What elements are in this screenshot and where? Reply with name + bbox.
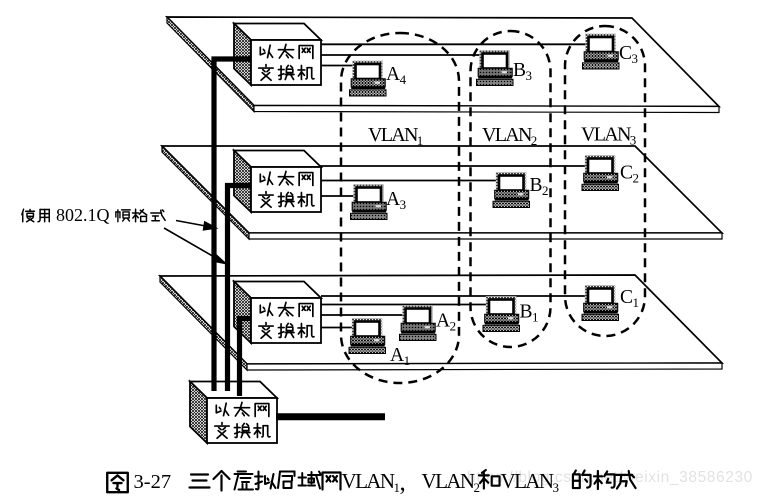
svg-text:VLAN1: VLAN1 <box>342 469 400 495</box>
svg-text:VLAN2: VLAN2 <box>422 469 480 495</box>
svg-text:VLAN2: VLAN2 <box>482 124 537 148</box>
svg-text:VLAN1: VLAN1 <box>368 124 423 148</box>
svg-text:3-27: 3-27 <box>134 471 172 493</box>
svg-text:802.1Q: 802.1Q <box>56 205 110 225</box>
svg-text:VLAN3: VLAN3 <box>581 124 636 148</box>
svg-text:VLAN3: VLAN3 <box>501 469 559 495</box>
svg-text:,: , <box>400 469 406 496</box>
